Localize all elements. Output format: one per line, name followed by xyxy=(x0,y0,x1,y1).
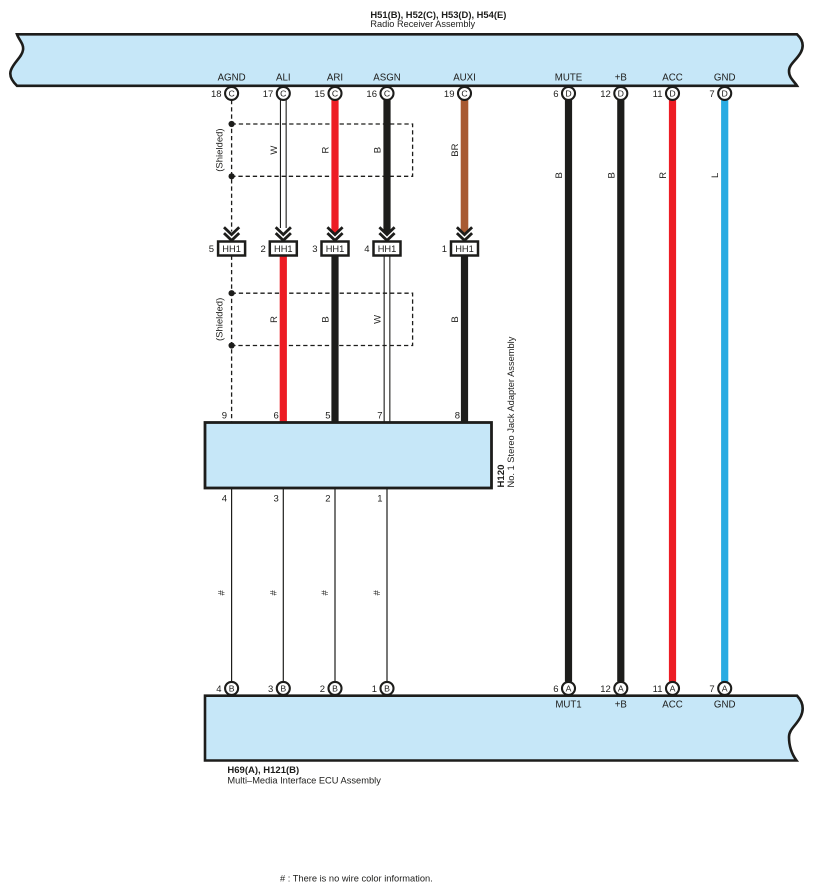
svg-text:D: D xyxy=(565,89,571,99)
svg-text:17: 17 xyxy=(263,89,274,100)
svg-text:19: 19 xyxy=(444,89,455,100)
svg-text:3: 3 xyxy=(274,494,279,505)
svg-text:A: A xyxy=(618,684,624,694)
svg-text:B: B xyxy=(554,172,565,178)
svg-text:MUT1: MUT1 xyxy=(555,699,581,710)
svg-text:#: # xyxy=(372,589,383,595)
svg-text:+B: +B xyxy=(615,699,627,710)
svg-text:HH1: HH1 xyxy=(274,244,293,254)
svg-text:3: 3 xyxy=(268,684,273,695)
svg-text:1: 1 xyxy=(442,244,447,255)
svg-text:AGND: AGND xyxy=(218,73,246,84)
svg-text:C: C xyxy=(332,89,338,99)
svg-text:B: B xyxy=(384,684,390,694)
svg-text:5: 5 xyxy=(325,410,330,421)
svg-text:4: 4 xyxy=(222,494,227,505)
svg-text:ARI: ARI xyxy=(327,73,343,84)
svg-text:GND: GND xyxy=(714,699,736,710)
svg-text:2: 2 xyxy=(325,494,330,505)
svg-text:C: C xyxy=(228,89,234,99)
svg-text:11: 11 xyxy=(653,684,663,695)
svg-text:7: 7 xyxy=(377,410,382,421)
svg-text:4: 4 xyxy=(364,244,369,255)
svg-text:#: # xyxy=(320,589,331,595)
svg-text:+B: +B xyxy=(615,73,627,84)
svg-text:6: 6 xyxy=(553,89,558,100)
svg-text:HH1: HH1 xyxy=(326,244,345,254)
svg-text:2: 2 xyxy=(320,684,325,695)
svg-text:D: D xyxy=(669,89,675,99)
svg-text:C: C xyxy=(280,89,286,99)
svg-text:5: 5 xyxy=(209,244,214,255)
svg-text:4: 4 xyxy=(216,684,221,695)
svg-text:B: B xyxy=(229,684,235,694)
svg-text:W: W xyxy=(373,315,384,324)
svg-text:15: 15 xyxy=(314,89,325,100)
svg-text:AUXI: AUXI xyxy=(453,73,476,84)
svg-text:1: 1 xyxy=(377,494,382,505)
svg-text:3: 3 xyxy=(312,244,317,255)
svg-text:7: 7 xyxy=(709,89,714,100)
svg-text:W: W xyxy=(269,146,280,155)
svg-text:12: 12 xyxy=(600,89,611,100)
svg-text:R: R xyxy=(658,172,669,179)
svg-text:9: 9 xyxy=(222,410,227,421)
svg-text:D: D xyxy=(722,89,728,99)
svg-text:A: A xyxy=(566,684,572,694)
svg-text:# : There is no wire color inf: # : There is no wire color information. xyxy=(280,873,433,883)
svg-text:Radio Receiver Assembly: Radio Receiver Assembly xyxy=(370,19,475,29)
svg-text:R: R xyxy=(321,147,332,154)
svg-text:ACC: ACC xyxy=(662,73,682,84)
svg-text:(Shielded): (Shielded) xyxy=(215,298,226,341)
svg-text:6: 6 xyxy=(553,684,558,695)
svg-text:ALI: ALI xyxy=(276,73,291,84)
svg-text:ACC: ACC xyxy=(662,699,682,710)
svg-text:12: 12 xyxy=(600,684,611,695)
svg-text:HH1: HH1 xyxy=(455,244,474,254)
svg-text:(Shielded): (Shielded) xyxy=(215,128,226,171)
svg-text:B: B xyxy=(450,316,461,322)
svg-text:8: 8 xyxy=(455,410,460,421)
svg-text:6: 6 xyxy=(274,410,279,421)
svg-text:ASGN: ASGN xyxy=(373,73,400,84)
svg-text:HH1: HH1 xyxy=(378,244,397,254)
svg-text:C: C xyxy=(384,89,390,99)
svg-text:MUTE: MUTE xyxy=(555,73,583,84)
svg-text:C: C xyxy=(461,89,467,99)
svg-text:B: B xyxy=(606,172,617,178)
svg-text:A: A xyxy=(670,684,676,694)
svg-text:L: L xyxy=(710,173,721,178)
svg-text:B: B xyxy=(373,147,384,153)
svg-text:BR: BR xyxy=(450,143,461,156)
svg-text:B: B xyxy=(280,684,286,694)
svg-text:No. 1 Stereo Jack Adapter Asse: No. 1 Stereo Jack Adapter Assembly xyxy=(506,336,516,487)
svg-text:B: B xyxy=(321,316,332,322)
svg-text:A: A xyxy=(722,684,728,694)
svg-text:H69(A), H121(B): H69(A), H121(B) xyxy=(227,765,299,776)
svg-text:11: 11 xyxy=(653,89,663,100)
svg-text:R: R xyxy=(269,316,280,323)
svg-text:HH1: HH1 xyxy=(222,244,241,254)
svg-text:#: # xyxy=(268,589,279,595)
svg-text:D: D xyxy=(618,89,624,99)
svg-text:B: B xyxy=(332,684,338,694)
svg-text:2: 2 xyxy=(261,244,266,255)
svg-text:GND: GND xyxy=(714,73,736,84)
svg-text:1: 1 xyxy=(372,684,377,695)
svg-text:16: 16 xyxy=(366,89,377,100)
svg-text:Multi–Media Interface ECU Asse: Multi–Media Interface ECU Assembly xyxy=(227,775,381,785)
svg-text:18: 18 xyxy=(211,89,222,100)
svg-text:7: 7 xyxy=(709,684,714,695)
svg-text:#: # xyxy=(217,589,228,595)
